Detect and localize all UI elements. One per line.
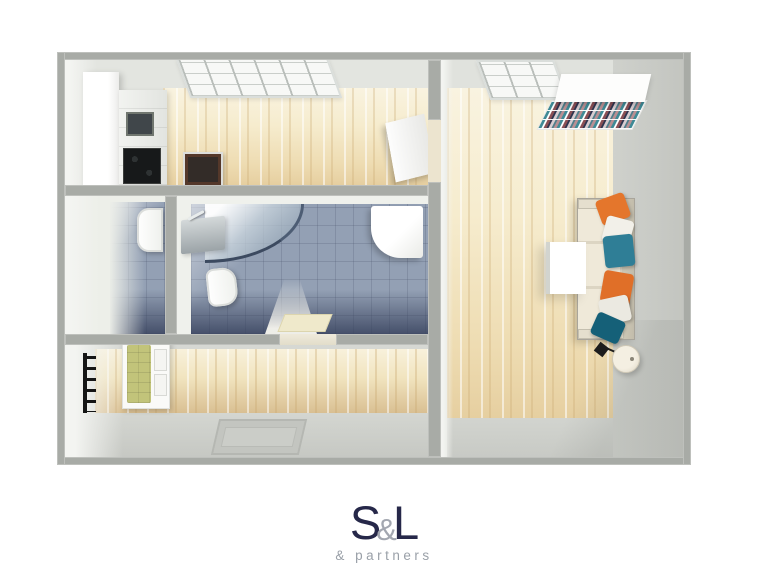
living-window — [476, 60, 569, 100]
living-wall-face — [441, 60, 453, 457]
sofa-pillow-teal — [602, 234, 635, 269]
living-bookshelf-books — [536, 100, 647, 130]
wc-wall-face — [65, 196, 99, 334]
wall-wc-bathroom — [165, 196, 177, 334]
floorplan-page: S&L & partners — [0, 0, 768, 576]
kitchen-cooktop — [123, 148, 161, 184]
kitchen-tall-cabinet — [83, 72, 119, 185]
room-kitchen — [65, 60, 428, 185]
wall-kitchen-bottom — [65, 185, 428, 196]
wall-mid-vertical-lower — [428, 182, 441, 457]
wall-mid-vertical-upper — [428, 60, 441, 120]
kitchen-oven — [183, 152, 223, 185]
brand-logo: S&L & partners — [0, 499, 768, 563]
hallway-shoe-bench — [122, 345, 170, 409]
logo-subtitle: & partners — [0, 548, 768, 563]
wc-toilet — [137, 208, 163, 252]
bench-shelf-cell — [154, 349, 167, 371]
wall-outer-top — [57, 52, 691, 60]
wall-hallway-top-right — [336, 334, 428, 345]
kitchen-sink — [126, 112, 154, 136]
hallway-doormat — [211, 419, 307, 455]
wall-hallway-top-left — [65, 334, 280, 345]
wall-outer-right — [683, 52, 691, 465]
bathroom-toilet — [205, 267, 239, 308]
floor-lamp-finial — [630, 357, 634, 361]
doorway-kitchen-living — [428, 120, 441, 182]
floor-lamp-shade — [612, 345, 640, 373]
kitchen-window — [176, 60, 343, 98]
living-coffee-table — [546, 242, 586, 294]
room-wc — [65, 196, 165, 334]
room-hallway — [65, 345, 428, 457]
bench-shelf-cell — [154, 374, 167, 396]
hallway-coat-rack — [83, 353, 99, 413]
doorway-bathroom-hallway — [280, 334, 336, 345]
room-bathroom — [177, 196, 428, 334]
bench-olive-cushion — [127, 345, 151, 403]
logo-ampersand-icon: & — [376, 514, 397, 545]
wall-outer-bottom — [57, 457, 691, 465]
bathroom-bath-mat — [277, 314, 332, 332]
bathroom-sink — [181, 216, 225, 255]
room-living — [441, 60, 683, 457]
logo-wordmark: S&L — [0, 499, 768, 546]
living-bookshelf-top — [555, 74, 651, 102]
wall-outer-left — [57, 52, 65, 465]
living-shadow — [501, 320, 683, 457]
